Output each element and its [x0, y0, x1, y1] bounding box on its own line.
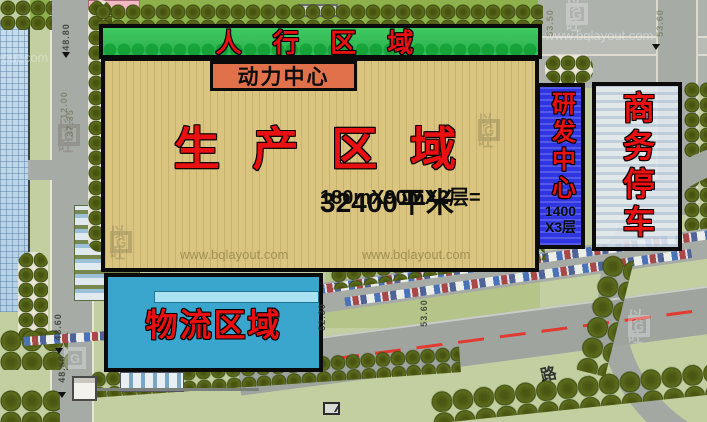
zone-logistics: 物流区域	[104, 273, 323, 372]
zone-pedestrian-label: 人 行 区 域	[216, 23, 426, 60]
watermark-logo-icon: G	[64, 347, 86, 369]
watermark-logo-text: 以旺	[566, 0, 582, 35]
gate-barrier	[97, 388, 259, 391]
survey-arrow	[55, 348, 63, 354]
zone-research-center: 研发中心 1400 X3层	[536, 83, 585, 249]
watermark-logo-text: 以旺	[58, 114, 74, 156]
research-floors: X3层	[545, 219, 576, 235]
watermark-url: www.bqlayout.com	[362, 247, 470, 262]
elevation-label: 48.80	[61, 23, 71, 51]
tree-row	[0, 0, 52, 30]
tree-cluster	[545, 55, 593, 83]
zone-production-label: 生 产 区 域	[105, 113, 535, 179]
elevation-label: 53.60	[655, 9, 665, 37]
zone-business-parking: 商务停车	[592, 82, 682, 251]
watermark-logo-text: 以旺	[110, 221, 126, 263]
road-marker-icon	[323, 402, 340, 415]
watermark-url: www.bqlayout.com	[545, 28, 653, 43]
zone-power-center: 动力中心	[210, 61, 357, 91]
zone-pedestrian: 人 行 区 域	[99, 24, 542, 59]
guard-house	[72, 376, 97, 401]
watermark-logo-text: 以旺	[478, 109, 494, 151]
elevation-label: 52.30	[317, 303, 327, 331]
survey-arrow	[62, 52, 70, 58]
production-area-value: 32400平米	[320, 181, 454, 221]
tree-cluster	[0, 390, 60, 422]
zone-business-parking-label: 商务停车	[614, 91, 660, 243]
zone-research-label: 研发中心	[549, 91, 573, 203]
tree-row	[95, 4, 543, 24]
site-plan: 48.80 12.00 37.35 48.60 48.50 53.50 53.6…	[0, 0, 707, 422]
watermark-url: www.bqlayout.com	[0, 50, 48, 65]
road-name-label: 路	[538, 358, 565, 386]
elevation-label: 48.60	[53, 313, 63, 341]
watermark-url: www.bqlayout.com	[180, 247, 288, 262]
watermark-logo-text: 以旺	[628, 305, 644, 347]
elevation-label: 53.60	[419, 299, 429, 327]
survey-arrow	[652, 44, 660, 50]
zone-power-label: 动力中心	[238, 61, 330, 91]
survey-arrow	[58, 392, 66, 398]
research-capacity: 1400	[545, 203, 576, 219]
zone-logistics-label: 物流区域	[145, 300, 281, 346]
